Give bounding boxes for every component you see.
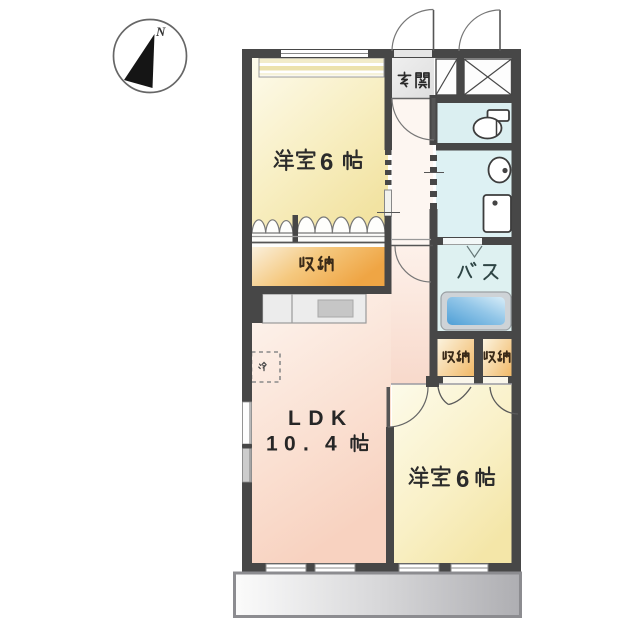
svg-text:6: 6 xyxy=(456,466,469,493)
svg-text:N: N xyxy=(155,24,166,39)
svg-text:6: 6 xyxy=(320,149,333,176)
svg-text:LDK: LDK xyxy=(288,407,354,430)
